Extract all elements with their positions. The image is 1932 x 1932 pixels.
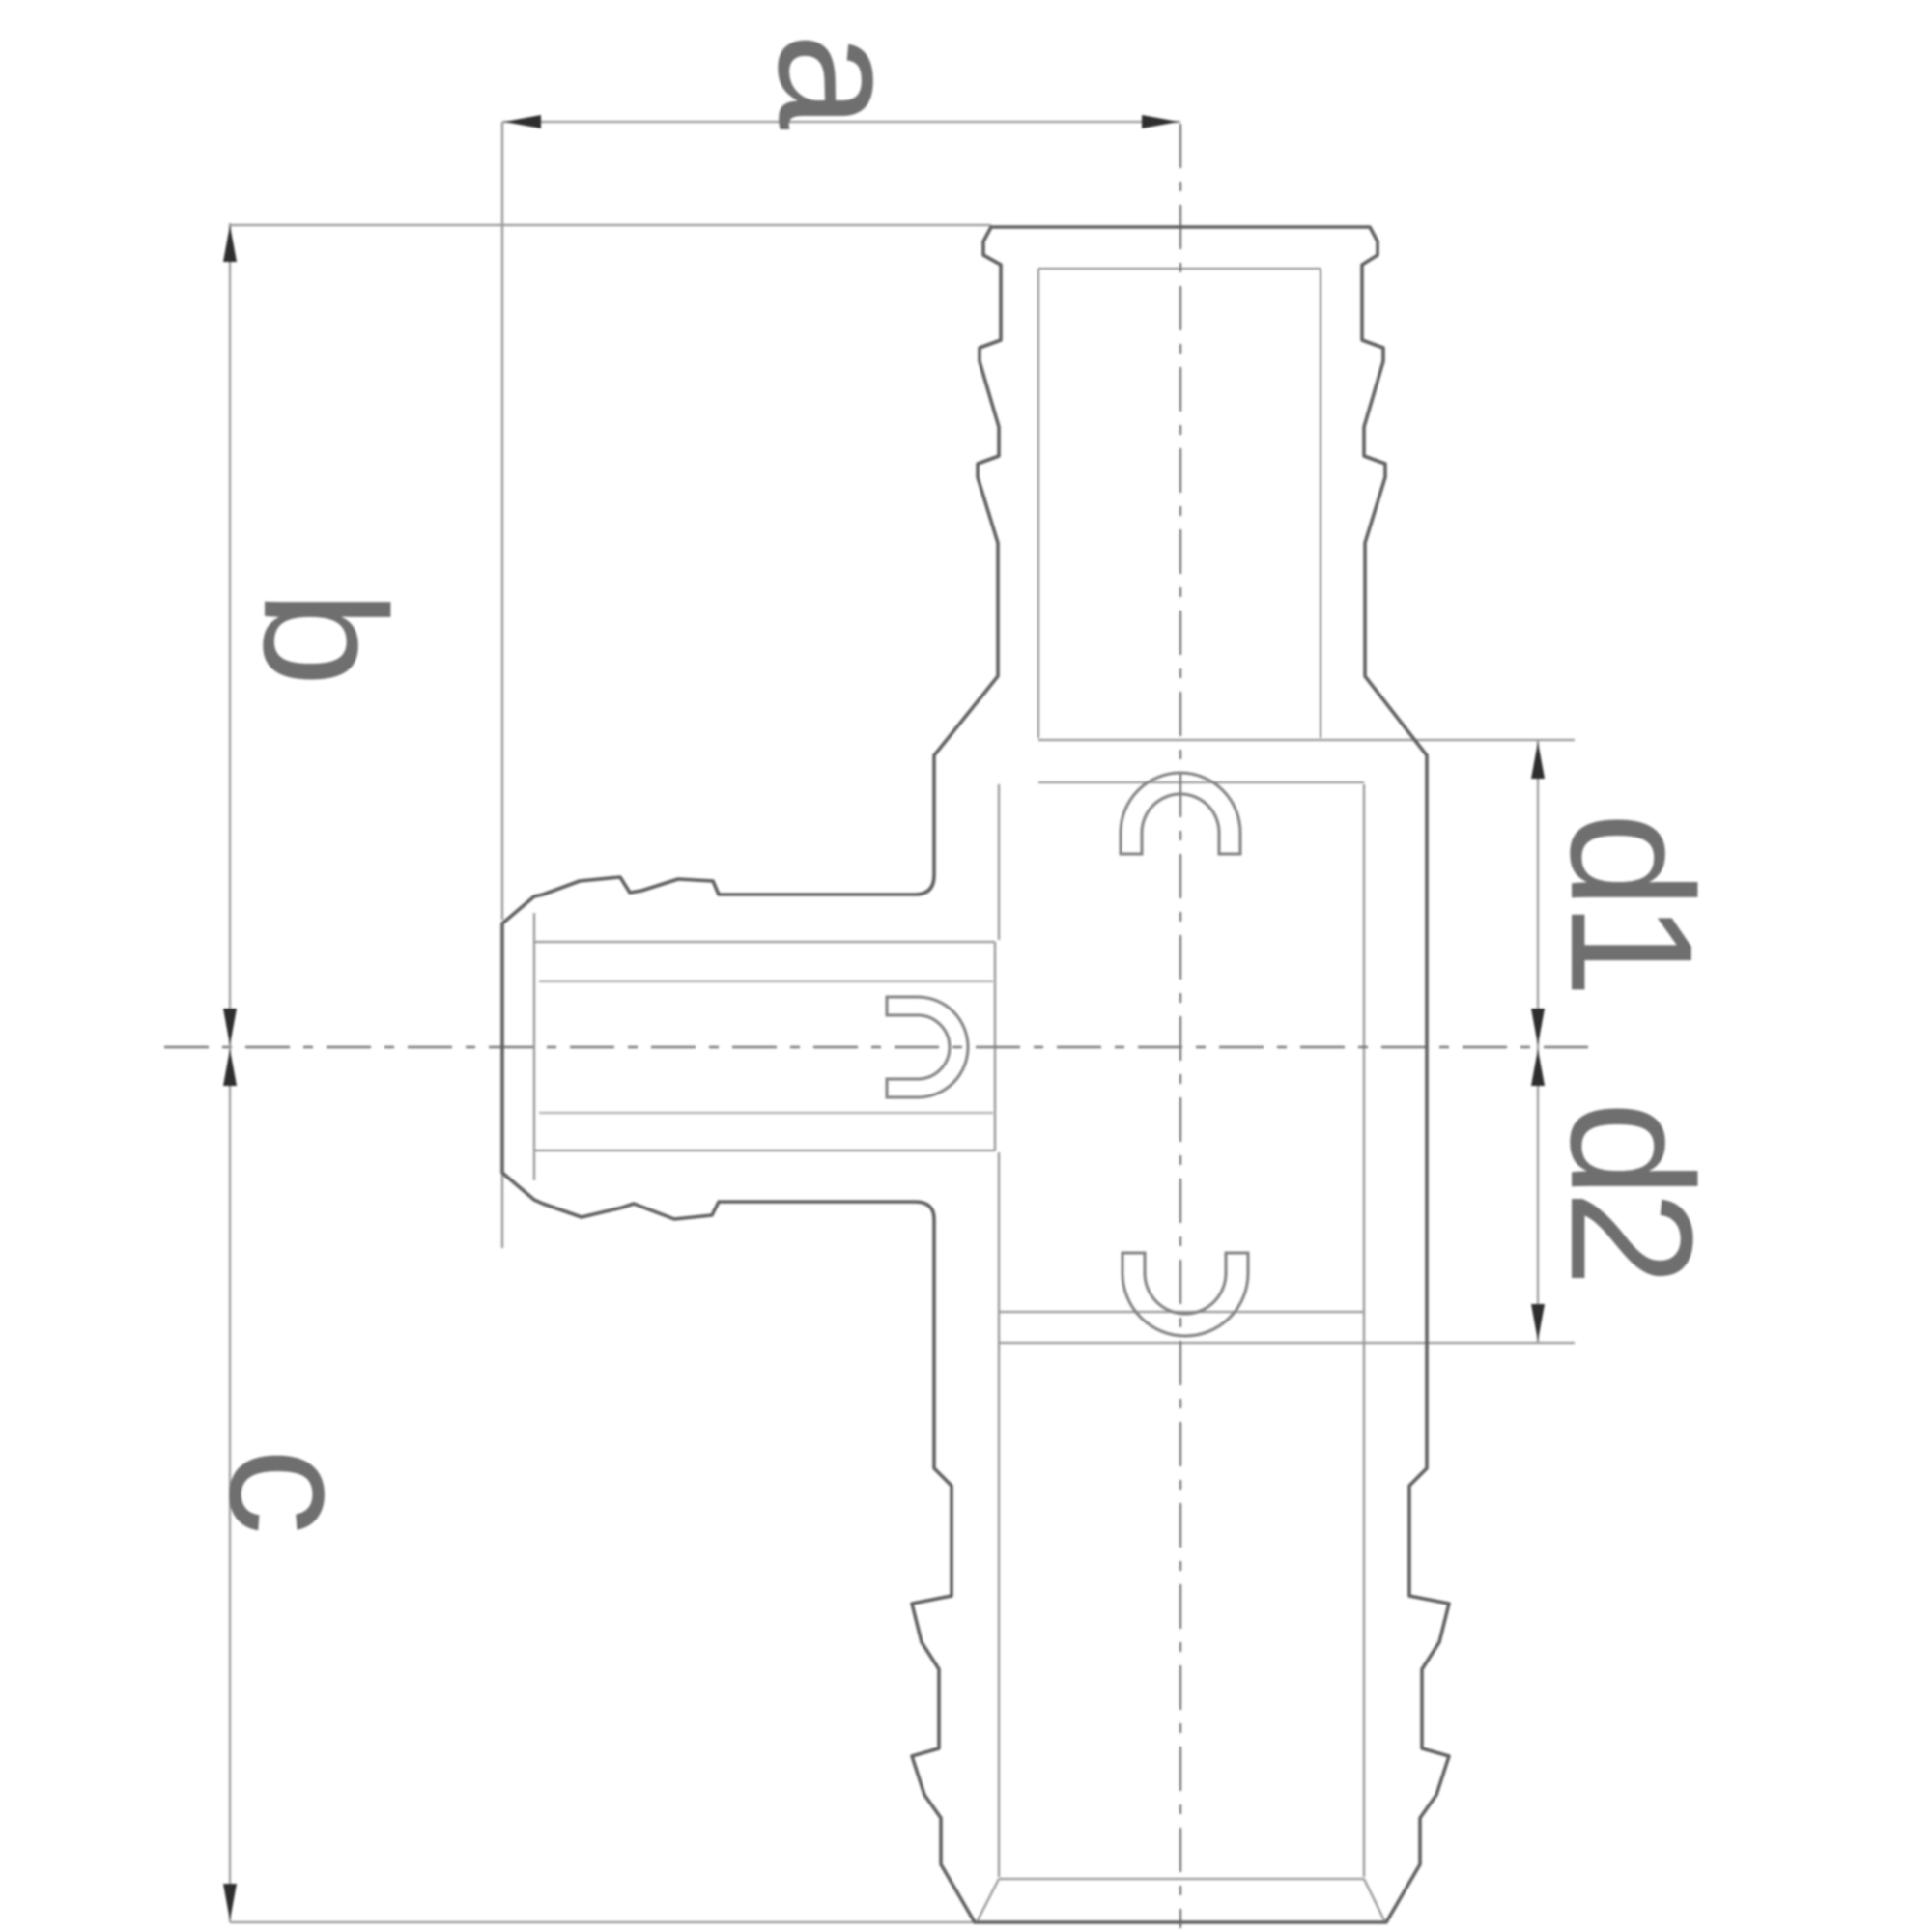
fitting-outline xyxy=(502,227,1449,1922)
arrow-d2-bottom xyxy=(1531,1304,1545,1341)
arrow-d2-top xyxy=(1531,1049,1545,1086)
arrow-b-top xyxy=(223,225,237,262)
lower-clip-ring xyxy=(1122,1253,1248,1336)
centerlines xyxy=(164,124,1594,1928)
clip-rings xyxy=(887,773,1248,1336)
dim-label-a: a xyxy=(752,33,925,122)
technical-drawing-canvas: a b c d1 d2 xyxy=(0,0,1932,1932)
dim-label-d2: d2 xyxy=(1544,1101,1718,1279)
arrow-d1-bottom xyxy=(1531,1009,1545,1045)
arrow-a-left xyxy=(504,115,541,128)
dim-label-c: c xyxy=(203,1448,377,1527)
arrow-b-bottom xyxy=(223,1009,237,1045)
dimension-lines xyxy=(230,122,1538,1922)
dimension-arrows xyxy=(223,115,1545,1920)
arrow-a-right xyxy=(1142,115,1179,128)
dim-label-d1: d1 xyxy=(1544,812,1718,990)
dim-label-b: b xyxy=(237,590,411,679)
arrow-c-top xyxy=(223,1049,237,1086)
upper-bore-lines xyxy=(1038,269,1321,738)
arrow-d1-top xyxy=(1531,742,1545,779)
arrow-c-bottom xyxy=(223,1884,237,1920)
